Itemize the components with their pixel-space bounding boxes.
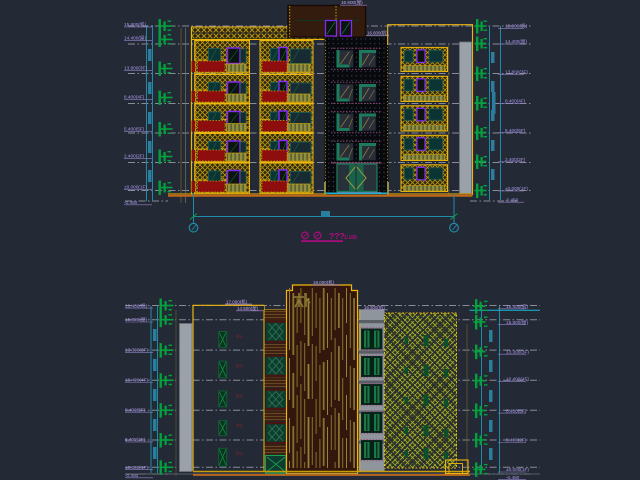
svg-text:10.400(4F): 10.400(4F) [506, 377, 529, 382]
svg-text:防火: 防火 [236, 363, 244, 368]
svg-text:防火: 防火 [236, 334, 244, 339]
svg-text:2.400(2F): 2.400(2F) [124, 154, 145, 159]
svg-text:8.400(4F): 8.400(4F) [124, 95, 145, 100]
svg-text:8.400(4F): 8.400(4F) [505, 99, 526, 104]
svg-text:13.300(3F): 13.300(3F) [125, 348, 148, 353]
svg-text:-0.450: -0.450 [125, 473, 139, 478]
svg-text:防火: 防火 [236, 450, 244, 455]
svg-text:8.400(5F): 8.400(5F) [506, 408, 527, 413]
svg-text:±0.000(1F): ±0.000(1F) [125, 465, 148, 470]
svg-text:5.400(2F): 5.400(2F) [125, 437, 146, 442]
svg-text:13.300(3F): 13.300(3F) [506, 349, 529, 354]
svg-text:10.400(4F): 10.400(4F) [125, 378, 148, 383]
svg-text:5.400(5F): 5.400(5F) [505, 128, 526, 133]
svg-text:???: ??? [329, 231, 345, 241]
svg-text:1:100: 1:100 [344, 235, 357, 241]
svg-text:防火: 防火 [236, 423, 244, 428]
svg-text:-0.450: -0.450 [506, 475, 520, 480]
svg-text:±0.000(1F): ±0.000(1F) [124, 185, 147, 190]
svg-text:防火: 防火 [236, 393, 244, 398]
svg-text:-0.450: -0.450 [505, 197, 519, 202]
svg-text:-0.450: -0.450 [124, 200, 138, 205]
svg-text:5.400(5F): 5.400(5F) [124, 127, 145, 132]
svg-text:±0.000(1F): ±0.000(1F) [505, 186, 528, 191]
svg-text:±0.000(1F): ±0.000(1F) [506, 467, 529, 472]
svg-text:2.400(2F): 2.400(2F) [505, 157, 526, 162]
svg-text:5.400(2F): 5.400(2F) [506, 438, 527, 443]
svg-text:13.800(3F): 13.800(3F) [505, 70, 528, 75]
svg-text:13.800(3F): 13.800(3F) [124, 66, 147, 71]
svg-text:8.400(5F): 8.400(5F) [125, 407, 146, 412]
